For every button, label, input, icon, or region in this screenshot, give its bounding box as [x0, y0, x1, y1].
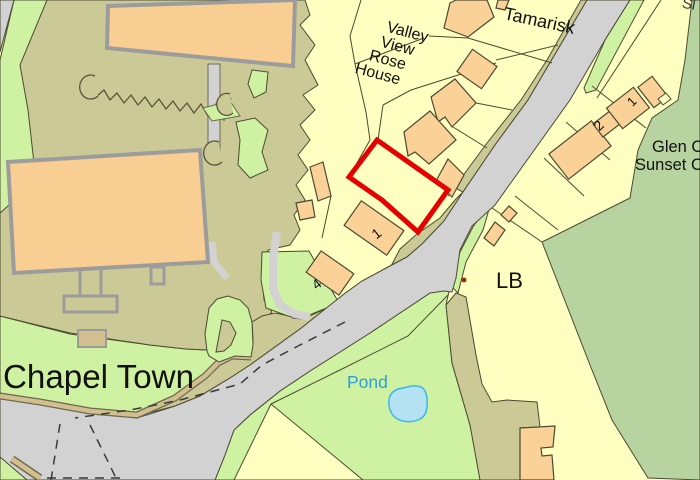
- svg-text:LB: LB: [496, 268, 523, 293]
- svg-text:Glen C: Glen C: [652, 138, 700, 156]
- svg-text:Pond: Pond: [347, 372, 388, 392]
- svg-text:Sunset C: Sunset C: [635, 156, 700, 174]
- svg-text:Chapel Town: Chapel Town: [3, 358, 194, 395]
